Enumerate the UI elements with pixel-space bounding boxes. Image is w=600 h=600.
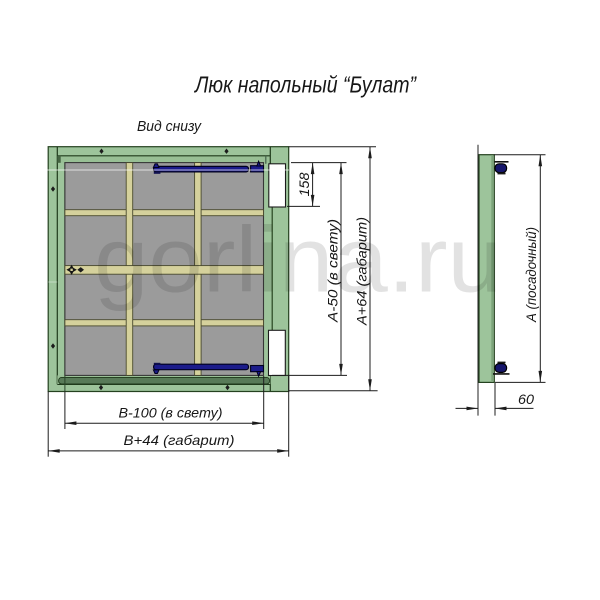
svg-text:В-100 (в свету): В-100 (в свету) xyxy=(119,405,223,421)
svg-text:60: 60 xyxy=(518,392,535,407)
svg-text:Люк напольный “Булат”: Люк напольный “Булат” xyxy=(193,72,417,98)
svg-text:gorlina.ru: gorlina.ru xyxy=(94,208,502,312)
svg-text:158: 158 xyxy=(296,172,312,196)
svg-text:Вид снизу: Вид снизу xyxy=(137,119,202,135)
svg-text:В+44 (габарит): В+44 (габарит) xyxy=(124,432,235,448)
svg-text:А (посадочный): А (посадочный) xyxy=(523,227,539,323)
